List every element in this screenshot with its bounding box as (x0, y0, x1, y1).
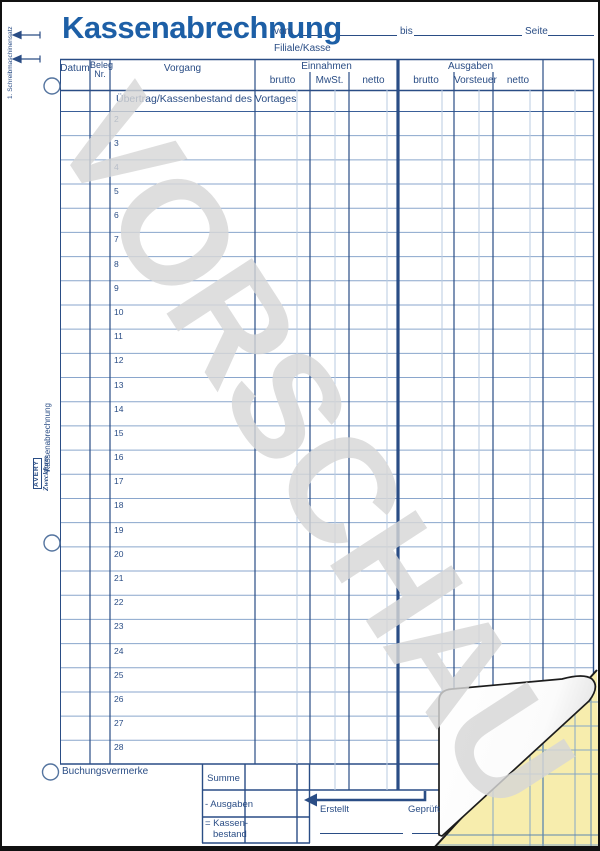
row-lines (60, 136, 594, 741)
bis-label: bis (400, 26, 413, 37)
geprueft-signature-field[interactable] (412, 822, 470, 833)
row-number: 12 (114, 355, 123, 365)
row-number: 16 (114, 452, 123, 462)
row-number: 20 (114, 549, 123, 559)
row-number: 5 (114, 186, 119, 196)
row-number: 25 (114, 670, 123, 680)
erstellt-label: Erstellt (320, 805, 349, 815)
row-number: 10 (114, 307, 123, 317)
row-number: 26 (114, 694, 123, 704)
row-number: 17 (114, 476, 123, 486)
row-number: 2 (114, 114, 119, 124)
punch-hole (44, 535, 60, 551)
row-number: 6 (114, 210, 119, 220)
geprueft-label: Geprüft (408, 805, 440, 815)
seite-label: Seite (525, 26, 548, 37)
vom-field[interactable] (290, 24, 397, 36)
row-number: 15 (114, 428, 123, 438)
row-number: 27 (114, 718, 123, 728)
row-number: 4 (114, 162, 119, 172)
spine-set-text: 1. Schreibmaschinensatz (7, 26, 14, 99)
row-number: 28 (114, 742, 123, 752)
punch-hole (43, 764, 59, 780)
column-header-vorgang: Vorgang (110, 63, 255, 74)
column-group-ausgaben: Ausgaben (398, 61, 543, 72)
column-header-netto-einnahmen: netto (349, 75, 398, 86)
row-number: 18 (114, 500, 123, 510)
column-group-einnahmen: Einnahmen (255, 61, 398, 72)
column-header-datum: Datum (60, 63, 90, 74)
row-number: 11 (114, 331, 123, 341)
row-number: 19 (114, 525, 123, 535)
summe-label: Summe (202, 774, 245, 784)
carry-over-row-label: Übertrag/Kassenbestand des Vortages (116, 94, 296, 106)
row-number: 7 (114, 234, 119, 244)
column-header-beleg-nr: Nr. (90, 70, 110, 80)
form-page: Kassenabrechnung vom bis Seite Filiale/K… (0, 0, 600, 851)
kassenbestand-label-line1: = Kassen- (205, 819, 248, 829)
row-number: 21 (114, 573, 123, 583)
table-frame (60, 60, 594, 791)
row-number: 8 (114, 259, 119, 269)
kassenbestand-label-line2: bestand (213, 830, 247, 840)
bis-field[interactable] (414, 24, 522, 36)
row-number: 24 (114, 646, 123, 656)
minus-ausgaben-label: - Ausgaben (205, 800, 253, 810)
seite-field[interactable] (548, 24, 594, 36)
form-grid (2, 2, 600, 851)
avery-zweckform-logo: AVERY Zweckform (33, 456, 51, 491)
column-header-mwst: MwSt. (310, 75, 349, 86)
brand-zweckform: Zweckform (41, 456, 50, 491)
row-number: 22 (114, 597, 123, 607)
row-number: 13 (114, 380, 123, 390)
column-header-brutto-einnahmen: brutto (255, 75, 310, 86)
punch-hole (44, 78, 60, 94)
filiale-kasse-field[interactable] (274, 52, 474, 60)
column-header-vorsteuer: Vorsteuer (454, 75, 493, 86)
row-number: 3 (114, 138, 119, 148)
column-lines (61, 59, 594, 790)
row-number: 14 (114, 404, 123, 414)
column-header-netto-ausgaben: netto (493, 75, 543, 86)
column-header-brutto-ausgaben: brutto (398, 75, 454, 86)
buchungsvermerke-label: Buchungsvermerke (62, 766, 148, 777)
row-number: 23 (114, 621, 123, 631)
row-number: 9 (114, 283, 119, 293)
register-mark-arrows (13, 32, 40, 63)
erstellt-signature-field[interactable] (320, 822, 403, 833)
